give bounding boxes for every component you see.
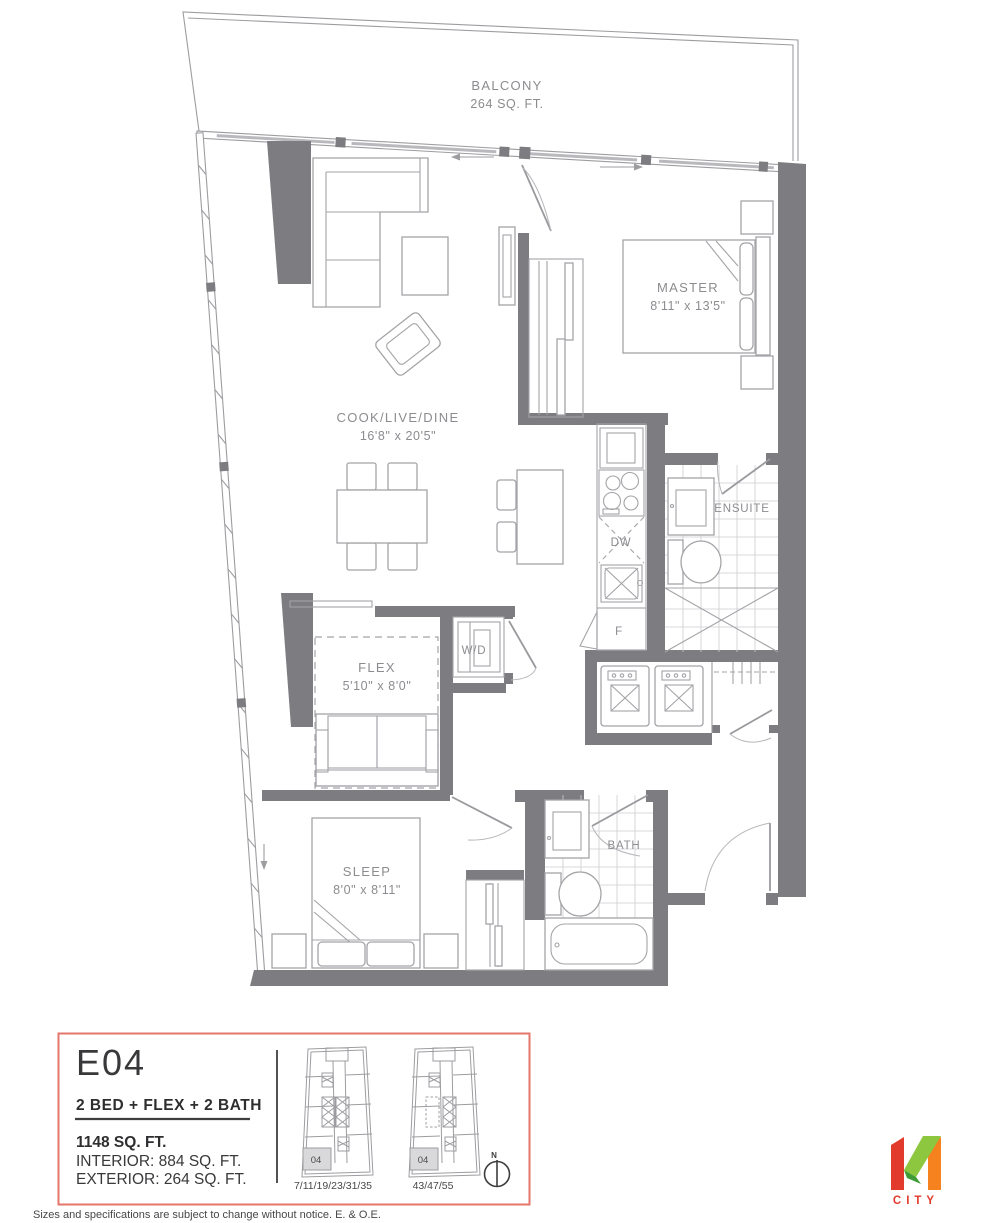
slider-arrow-right [600, 164, 643, 171]
kitchen-sink [601, 565, 643, 602]
laundry-label: W/D [462, 645, 487, 657]
sleep-bedroom: SLEEP 8'0" x 8'11" [261, 797, 525, 970]
armchair [374, 311, 442, 377]
floorplan-page: BALCONY 264 SQ. FT. [0, 0, 1000, 1223]
master-door [522, 165, 551, 231]
sleep-closet [466, 870, 524, 970]
master-bed [623, 237, 770, 355]
column-top-left [267, 141, 311, 284]
master-closet [529, 259, 583, 417]
living-label: COOK/LIVE/DINE [337, 410, 460, 425]
balcony-area-label: 264 SQ. FT. [470, 97, 543, 111]
nightstand [424, 934, 458, 968]
mcity-logo: CITY [891, 1136, 941, 1207]
laundry-closet: W/D [453, 617, 536, 680]
coat-closet [714, 662, 776, 742]
ensuite-shower [665, 588, 778, 652]
bathroom: BATH [545, 795, 653, 970]
keyplan-low-floors: 04 7/11/19/23/31/35 [294, 1047, 373, 1192]
keyplan1-unit: 04 [311, 1155, 322, 1166]
kitchen-island [497, 470, 563, 564]
keyplan2-unit: 04 [418, 1155, 429, 1166]
utility-machine [601, 666, 649, 726]
north-arrow: N [485, 1151, 510, 1187]
sleep-label: SLEEP [343, 864, 391, 879]
m-mark-icon [891, 1136, 941, 1190]
wall-right [778, 162, 806, 897]
flex-daybed [316, 714, 438, 786]
floorplan-drawing: BALCONY 264 SQ. FT. [0, 0, 1000, 1223]
logo-wordmark: CITY [893, 1195, 939, 1207]
master-label: MASTER [657, 280, 719, 295]
living-dims: 16'8" x 20'5" [360, 429, 436, 443]
laundry-door [509, 621, 536, 668]
slider-arrow-down [261, 844, 268, 870]
bath-label: BATH [607, 840, 640, 852]
cooktop [599, 470, 644, 516]
nightstand [272, 934, 306, 968]
ensuite-door [722, 459, 770, 494]
bath-vanity [545, 800, 589, 858]
column-mid-left [281, 593, 313, 727]
ensuite-label: ENSUITE [714, 503, 769, 515]
window-wall-left [195, 133, 266, 983]
total-area: 1148 SQ. FT. [76, 1134, 166, 1151]
nightstand [741, 356, 773, 389]
coffee-table [402, 237, 448, 295]
fridge: F [580, 608, 646, 650]
unit-layout: 2 BED + FLEX + 2 BATH [76, 1097, 262, 1114]
keyplan-high-floors: 04 43/47/55 [409, 1047, 480, 1192]
info-box: E04 2 BED + FLEX + 2 BATH 1148 SQ. FT. I… [59, 1034, 530, 1205]
keyplan1-floors: 7/11/19/23/31/35 [294, 1180, 372, 1192]
entry-area [601, 662, 776, 891]
utility-machine [655, 666, 703, 726]
tv-console [499, 227, 515, 305]
dishwasher: DW [599, 517, 644, 563]
sleep-dims: 8'0" x 8'11" [333, 883, 401, 897]
dining-set [337, 463, 427, 570]
ensuite-toilet [668, 540, 721, 584]
wall-bottom [250, 970, 668, 986]
kitchen: DW F [580, 424, 646, 650]
flex-label: FLEX [358, 660, 396, 675]
closet-door [730, 710, 772, 734]
bathtub [545, 918, 653, 970]
flex-dims: 5'10" x 8'0" [343, 679, 412, 693]
ensuite: ENSUITE [665, 459, 778, 652]
unit-number: E04 [76, 1042, 146, 1083]
master-bedroom: MASTER 8'11" x 13'5" [522, 165, 773, 417]
disclaimer-text: Sizes and specifications are subject to … [33, 1209, 381, 1221]
interior-area: INTERIOR: 884 SQ. FT. [76, 1153, 241, 1170]
bath-door [592, 795, 648, 826]
entry-door [705, 823, 770, 891]
dining-table [337, 490, 427, 543]
sleep-door [452, 797, 512, 828]
headboard [756, 237, 770, 355]
north-label: N [491, 1151, 497, 1160]
keyplan2-floors: 43/47/55 [413, 1180, 454, 1192]
balcony-label: BALCONY [471, 78, 542, 93]
bath-toilet [545, 872, 601, 916]
dishwasher-label: DW [611, 537, 632, 549]
exterior-area: EXTERIOR: 264 SQ. FT. [76, 1171, 247, 1188]
ensuite-vanity [668, 478, 714, 535]
master-dims: 8'11" x 13'5" [650, 299, 725, 313]
fridge-label: F [615, 626, 623, 638]
nightstand [741, 201, 773, 234]
